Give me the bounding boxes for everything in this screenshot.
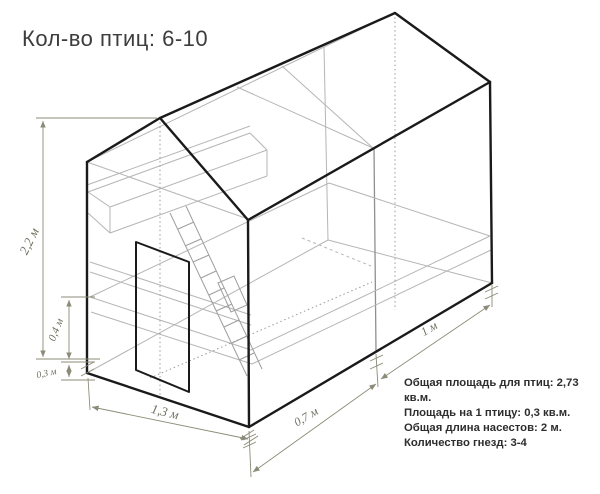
rear-right-post: [490, 82, 492, 283]
door-frame: [136, 242, 189, 392]
rear-left-corner-post: [324, 47, 328, 240]
platform-front-edge-2: [91, 312, 252, 364]
dim-label-height-base: 0,3 м: [36, 367, 58, 381]
front-gable: [87, 118, 248, 220]
shelf-rail: [87, 126, 250, 185]
ladder-rung: [178, 222, 194, 229]
platform-left-edge: [90, 183, 329, 297]
platform-back-edge: [329, 183, 490, 236]
shelf-left-bottom-edge: [88, 213, 110, 233]
floor-hidden-diagonal: [150, 282, 372, 378]
structure-outline: [87, 13, 492, 427]
shelf-right-top-edge: [250, 133, 267, 150]
dim-label-height-total: 2,2 м: [16, 225, 42, 257]
dim-label-width-front: 1,3 м: [150, 401, 181, 422]
shelf-back-top: [88, 133, 250, 192]
partition-post: [374, 148, 376, 352]
info-line-area-per-bird: Площадь на 1 птицу: 0,3 кв.м.: [404, 406, 600, 421]
perch-shelf: [87, 126, 267, 233]
dimension-line: [253, 384, 376, 472]
rear-gable-right-slope: [395, 13, 490, 82]
platform-right-edge: [251, 236, 490, 350]
coop-blueprint-page: 2,2 м 0,4 м 0,3 м 1,3 м 0,7: [0, 0, 600, 494]
roost-bar-top: [90, 262, 251, 315]
platform-front-edge: [90, 297, 251, 350]
partition: [374, 148, 376, 352]
extension-line: [376, 354, 378, 387]
ladder-rung: [193, 255, 209, 262]
left-eave-hidden: [87, 47, 324, 162]
platform-right-edge-2: [252, 250, 491, 364]
extension-line: [249, 431, 251, 477]
door: [136, 242, 189, 392]
roof-brace-2: [282, 66, 373, 148]
ladder-rung: [239, 353, 254, 360]
ladder-rung: [201, 271, 216, 278]
dimension-depth-front: 0,7 м: [243, 354, 383, 477]
dim-label-height-platform: 0,4 м: [46, 317, 66, 343]
info-block: Общая площадь для птиц: 2,73 кв.м. Площа…: [404, 376, 600, 451]
front-corner-post: [248, 220, 249, 427]
floor-platform: [90, 183, 491, 364]
roost-bar-bottom: [90, 272, 251, 325]
ladder-rail-left: [170, 213, 247, 376]
info-line-nest-count: Количество гнезд: 3-4: [404, 436, 600, 451]
right-eave: [248, 82, 490, 220]
shelf-left-top-edge: [88, 192, 110, 207]
info-line-perch-length: Общая длина насестов: 2 м.: [404, 421, 600, 436]
diagram-title: Кол-во птиц: 6-10: [22, 26, 208, 52]
dim-label-depth-back: 1 м: [418, 318, 440, 339]
extension-line: [88, 378, 90, 410]
info-line-total-area: Общая площадь для птиц: 2,73 кв.м.: [404, 376, 600, 406]
ladder-rung: [224, 320, 239, 327]
dim-label-depth-front: 0,7 м: [291, 404, 320, 429]
dimension-width-front: 1,3 м: [88, 378, 258, 445]
break-mark: [485, 286, 498, 299]
dimension-depth-back: 1 м: [381, 285, 498, 379]
ladder-rail-right: [186, 206, 262, 369]
roof-brace-1: [237, 87, 373, 148]
left-bottom-hidden: [87, 240, 328, 373]
